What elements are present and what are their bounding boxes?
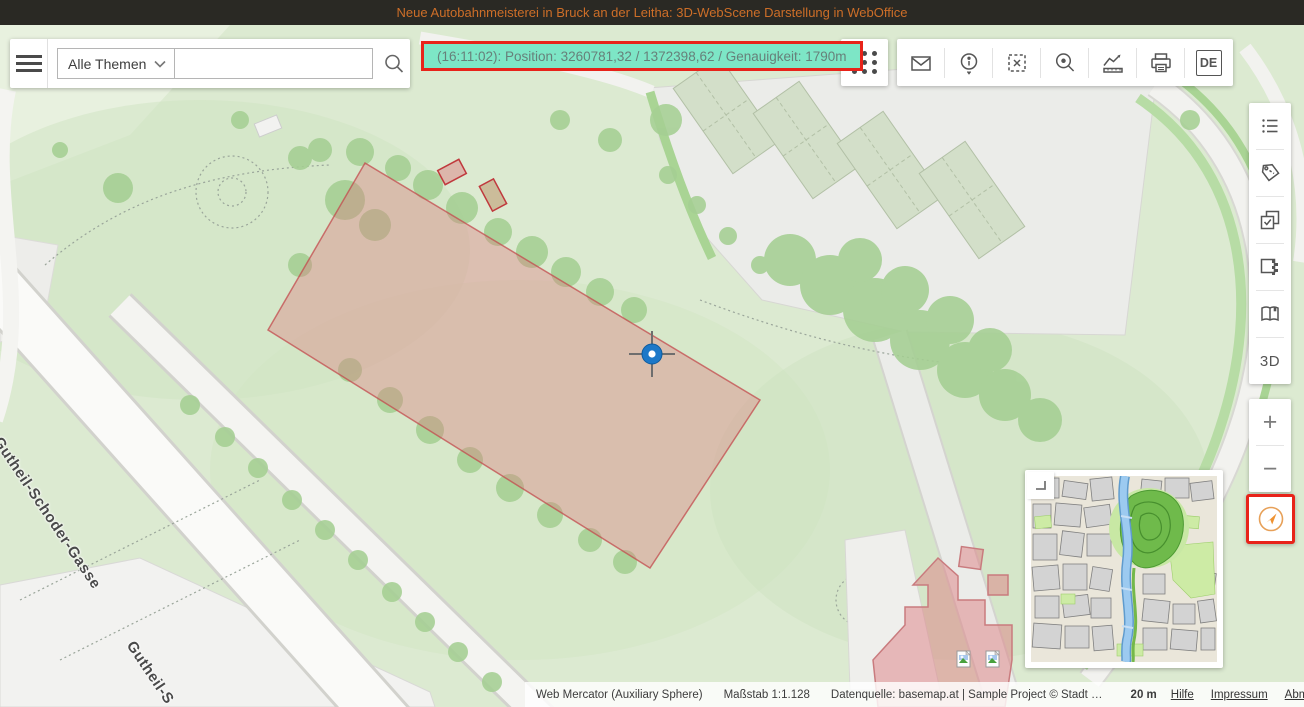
scalebar-label: 20 m (1131, 689, 1157, 701)
divider (47, 39, 48, 88)
zoom-in-button[interactable]: + (1249, 399, 1291, 445)
chevron-down-icon[interactable] (152, 56, 168, 72)
legend-book-button[interactable] (1249, 291, 1291, 337)
threed-button[interactable]: 3D (1249, 338, 1291, 384)
search-icon (383, 53, 405, 75)
topic-dropdown[interactable]: Alle Themen (58, 56, 152, 72)
help-link[interactable]: Hilfe (1171, 689, 1194, 701)
gps-position-text: (16:11:02): Position: 3260781,32 / 13723… (437, 49, 847, 64)
map-tools-panel: 3D (1249, 103, 1291, 384)
transparency-button[interactable] (1249, 244, 1291, 290)
page-title: Neue Autobahnmeisterei in Bruck an der L… (397, 5, 908, 20)
impressum-link[interactable]: Impressum (1211, 689, 1268, 701)
mail-icon (909, 51, 933, 75)
zoom-panel: + − (1249, 399, 1291, 492)
search-panel: Alle Themen (10, 39, 410, 88)
status-bar: Web Mercator (Auxiliary Sphere) Maßstab … (525, 682, 1304, 707)
zoom-out-button[interactable]: − (1249, 446, 1291, 492)
overview-map-graphic (1031, 476, 1217, 662)
app-window: Gutheil-Schoder-Gasse Gutheil-S Neue Aut… (0, 0, 1304, 707)
select-layers-button[interactable] (1249, 197, 1291, 243)
zoom-search-icon (1053, 51, 1077, 75)
map-scale-label: Maßstab 1:1.128 (724, 689, 810, 701)
broken-image-icon (985, 650, 1002, 668)
tag-icon (1258, 161, 1282, 185)
projection-label: Web Mercator (Auxiliary Sphere) (536, 689, 703, 701)
info-icon (957, 51, 981, 75)
legend-book-icon (1258, 302, 1282, 326)
title-bar: Neue Autobahnmeisterei in Bruck an der L… (0, 0, 1304, 25)
overview-map[interactable] (1025, 470, 1223, 668)
mail-button[interactable] (897, 39, 944, 86)
datasource-label: Datenquelle: basemap.at | Sample Project… (831, 689, 1103, 701)
search-input[interactable] (175, 49, 372, 78)
labels-tag-button[interactable] (1249, 150, 1291, 196)
select-layers-icon (1258, 208, 1282, 232)
language-button[interactable]: DE (1185, 39, 1232, 86)
threed-label: 3D (1260, 353, 1280, 370)
menu-button[interactable] (10, 39, 47, 88)
collapse-corner-icon (1032, 477, 1050, 495)
broken-image-icon (956, 650, 973, 668)
gps-position-readout: (16:11:02): Position: 3260781,32 / 13723… (421, 41, 863, 71)
legend-list-button[interactable] (1249, 103, 1291, 149)
main-toolbar: DE (897, 39, 1233, 86)
search-button[interactable] (377, 39, 410, 88)
profile-measure-button[interactable] (1089, 39, 1136, 86)
info-button[interactable] (945, 39, 992, 86)
language-label: DE (1196, 50, 1222, 76)
locate-me-button[interactable] (1246, 494, 1295, 544)
clear-selection-icon (1005, 51, 1029, 75)
transparency-icon (1258, 255, 1282, 279)
overview-collapse-button[interactable] (1027, 472, 1054, 499)
print-button[interactable] (1137, 39, 1184, 86)
minus-icon: − (1263, 457, 1278, 482)
zoom-search-button[interactable] (1041, 39, 1088, 86)
hamburger-icon (16, 51, 42, 76)
logout-link[interactable]: Abmelden (1285, 689, 1304, 701)
search-combo: Alle Themen (57, 48, 373, 79)
profile-measure-icon (1101, 51, 1125, 75)
plus-icon: + (1263, 410, 1278, 435)
legend-list-icon (1258, 114, 1282, 138)
locate-icon (1257, 505, 1285, 533)
clear-selection-button[interactable] (993, 39, 1040, 86)
print-icon (1149, 51, 1173, 75)
